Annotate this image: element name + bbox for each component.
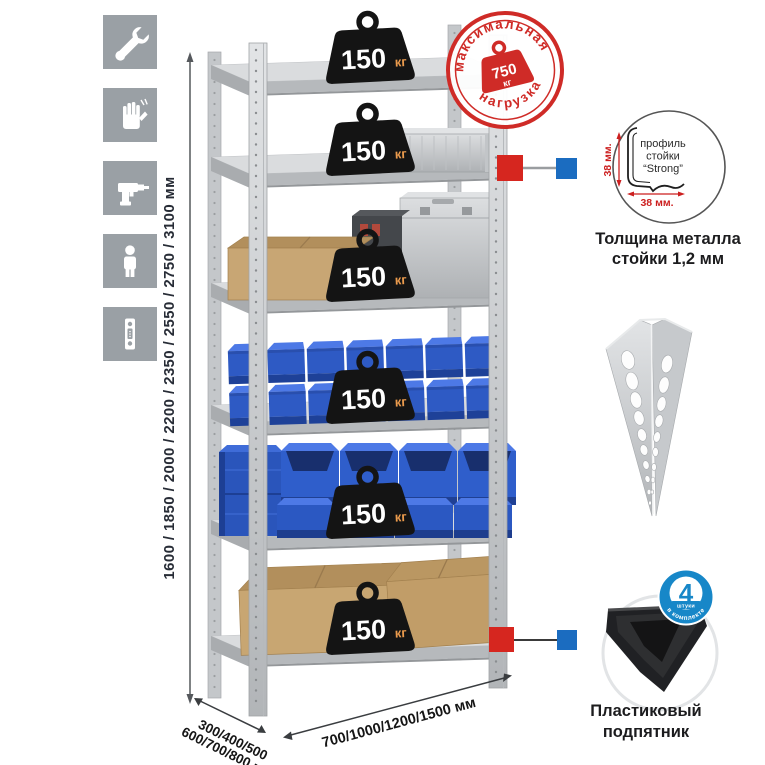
- badge-quantity-unit: штуки: [677, 603, 695, 609]
- shelf-load-unit: кг: [394, 54, 407, 70]
- profile-label-1: профиль: [640, 138, 686, 150]
- shelf-load-value: 150: [340, 43, 387, 75]
- shelf-load-unit: кг: [394, 146, 407, 162]
- profile-height-dim: 38 мм.: [602, 143, 614, 176]
- angle-post-image: [606, 319, 692, 516]
- shelf-load-value: 150: [340, 135, 387, 167]
- foot-caption-2: подпятник: [603, 723, 690, 741]
- height-dimension-label: 1600 / 1850 / 2000 / 2200 / 2350 / 2550 …: [161, 176, 178, 579]
- red-marker-bottom: [489, 627, 514, 652]
- width-dimension-label: 700/1000/1200/1500 мм: [320, 695, 477, 751]
- profile-width-dim: 38 мм.: [640, 197, 673, 209]
- front-left-post: [249, 43, 267, 716]
- shelf-load-value: 150: [340, 498, 387, 530]
- plastic-foot-detail: 4 штуки в комплекте Пластиковый подпятни…: [590, 570, 717, 742]
- weight-badge-shelf-1: 150 кг: [323, 11, 415, 84]
- shelf-load-unit: кг: [394, 625, 407, 641]
- shelf-load-unit: кг: [394, 272, 407, 288]
- profile-caption-1: Толщина металла: [595, 230, 741, 248]
- front-right-post: [489, 35, 507, 688]
- width-dimension: 700/1000/1200/1500 мм: [283, 674, 512, 752]
- foot-callout-connector: [489, 627, 577, 652]
- quantity-badge: 4 штуки в комплекте: [659, 570, 714, 625]
- shelf-load-value: 150: [340, 614, 387, 646]
- foot-caption-1: Пластиковый: [590, 702, 701, 720]
- profile-label-3: “Strong”: [643, 163, 683, 175]
- profile-label-2: стойки: [646, 151, 680, 163]
- shelf-load-unit: кг: [394, 509, 407, 525]
- shelf-load-value: 150: [340, 261, 387, 293]
- blue-marker-top: [556, 158, 577, 179]
- blue-marker-bottom: [557, 630, 577, 650]
- large-metal-case: [400, 192, 502, 298]
- shelf-load-value: 150: [340, 383, 387, 415]
- red-marker-top: [497, 155, 523, 181]
- product-infographic: 150 кг 150 кг 150 кг 150 кг 150 кг 150 к…: [0, 0, 765, 765]
- weight-badge-shelf-2: 150 кг: [323, 103, 415, 176]
- profile-callout-connector: [497, 155, 577, 181]
- infographic-artwork: 150 кг 150 кг 150 кг 150 кг 150 кг 150 к…: [0, 0, 765, 765]
- profile-caption-2: стойки 1,2 мм: [612, 250, 724, 268]
- profile-detail: 38 мм. 38 мм. профиль стойки “Strong” То…: [595, 111, 741, 268]
- height-dimension: 1600 / 1850 / 2000 / 2200 / 2350 / 2550 …: [161, 52, 194, 704]
- shelf-load-unit: кг: [394, 394, 407, 410]
